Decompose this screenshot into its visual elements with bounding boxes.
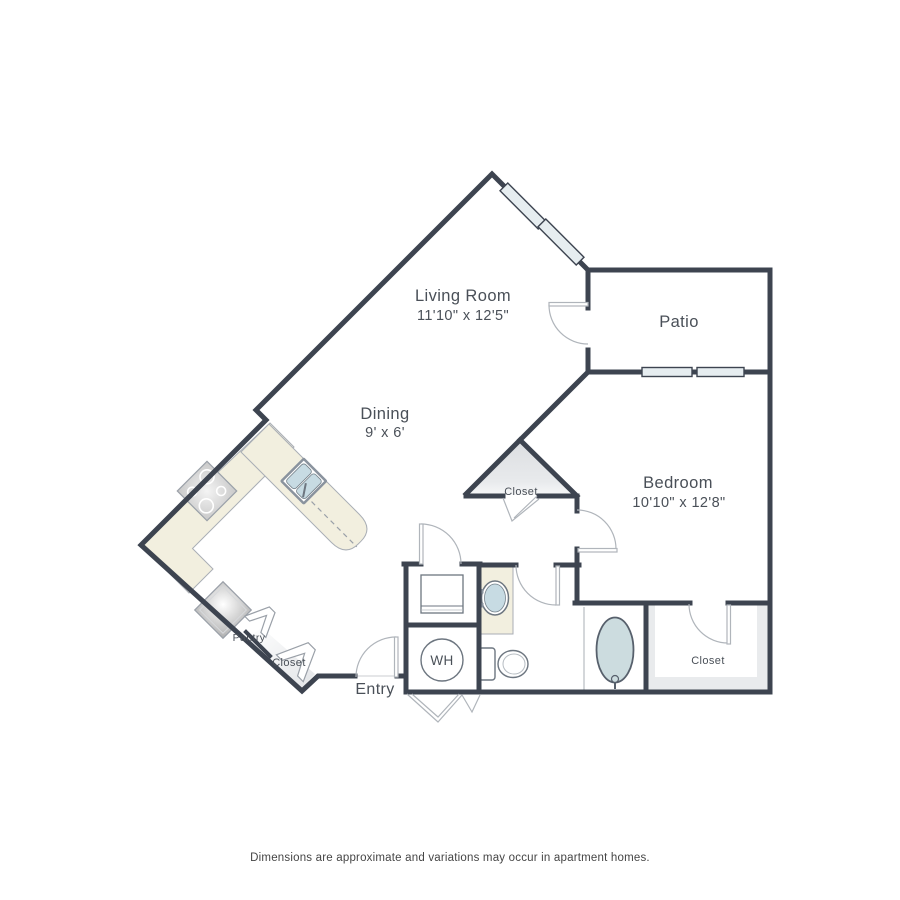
living-room-window [538, 219, 584, 265]
floor-plan: Living Room 11'10" x 12'5" Dining 9' x 6… [0, 0, 900, 900]
pantry-label: Pantry [233, 632, 266, 644]
hall-closet-label: Closet [504, 486, 538, 498]
vanity-sink-basin [485, 584, 506, 612]
disclaimer-text: Dimensions are approximate and variation… [250, 852, 650, 864]
hall-closet-bifold [503, 496, 539, 521]
patio-door-arc [549, 305, 588, 344]
bedroom-door-leaf [578, 549, 617, 553]
bathroom-door-leaf [556, 566, 560, 605]
floor-plan-page: Living Room 11'10" x 12'5" Dining 9' x 6… [0, 0, 900, 900]
water-heater-bifold [407, 694, 480, 722]
living-room-dims: 11'10" x 12'5" [417, 308, 509, 324]
refrigerator [195, 582, 252, 639]
entry-door-leaf [395, 637, 399, 677]
windows [500, 183, 744, 376]
entry-closet-label: Closet [272, 657, 306, 669]
bedroom-closet-door-leaf [727, 605, 731, 644]
laundry-door-leaf [420, 524, 424, 564]
patio-label: Patio [659, 313, 699, 331]
dining-dims: 9' x 6' [365, 425, 405, 441]
toilet-seat [503, 654, 525, 674]
tub-drain-icon [612, 676, 619, 683]
bathtub [597, 618, 634, 683]
entry-door-arc [356, 637, 396, 677]
thin-lines [355, 607, 584, 690]
bedroom-closet-label: Closet [691, 655, 725, 667]
bathroom-door-arc [516, 565, 556, 605]
living-room-window [500, 183, 546, 229]
kitchen [141, 423, 375, 638]
kitchen-peninsula [241, 423, 375, 557]
washer-dryer [421, 575, 463, 613]
dining-label: Dining [360, 405, 409, 423]
laundry-door-arc [421, 524, 461, 564]
entry-label: Entry [355, 681, 394, 698]
bedroom-label: Bedroom [643, 474, 713, 492]
patio-door-leaf [549, 303, 588, 307]
bedroom-dims: 10'10" x 12'8" [632, 495, 725, 511]
bedroom-window [697, 368, 744, 377]
living-room-label: Living Room [415, 287, 511, 305]
bedroom-window [642, 368, 692, 377]
water-heater-label: WH [430, 653, 453, 668]
bedroom-door-arc [577, 510, 616, 549]
